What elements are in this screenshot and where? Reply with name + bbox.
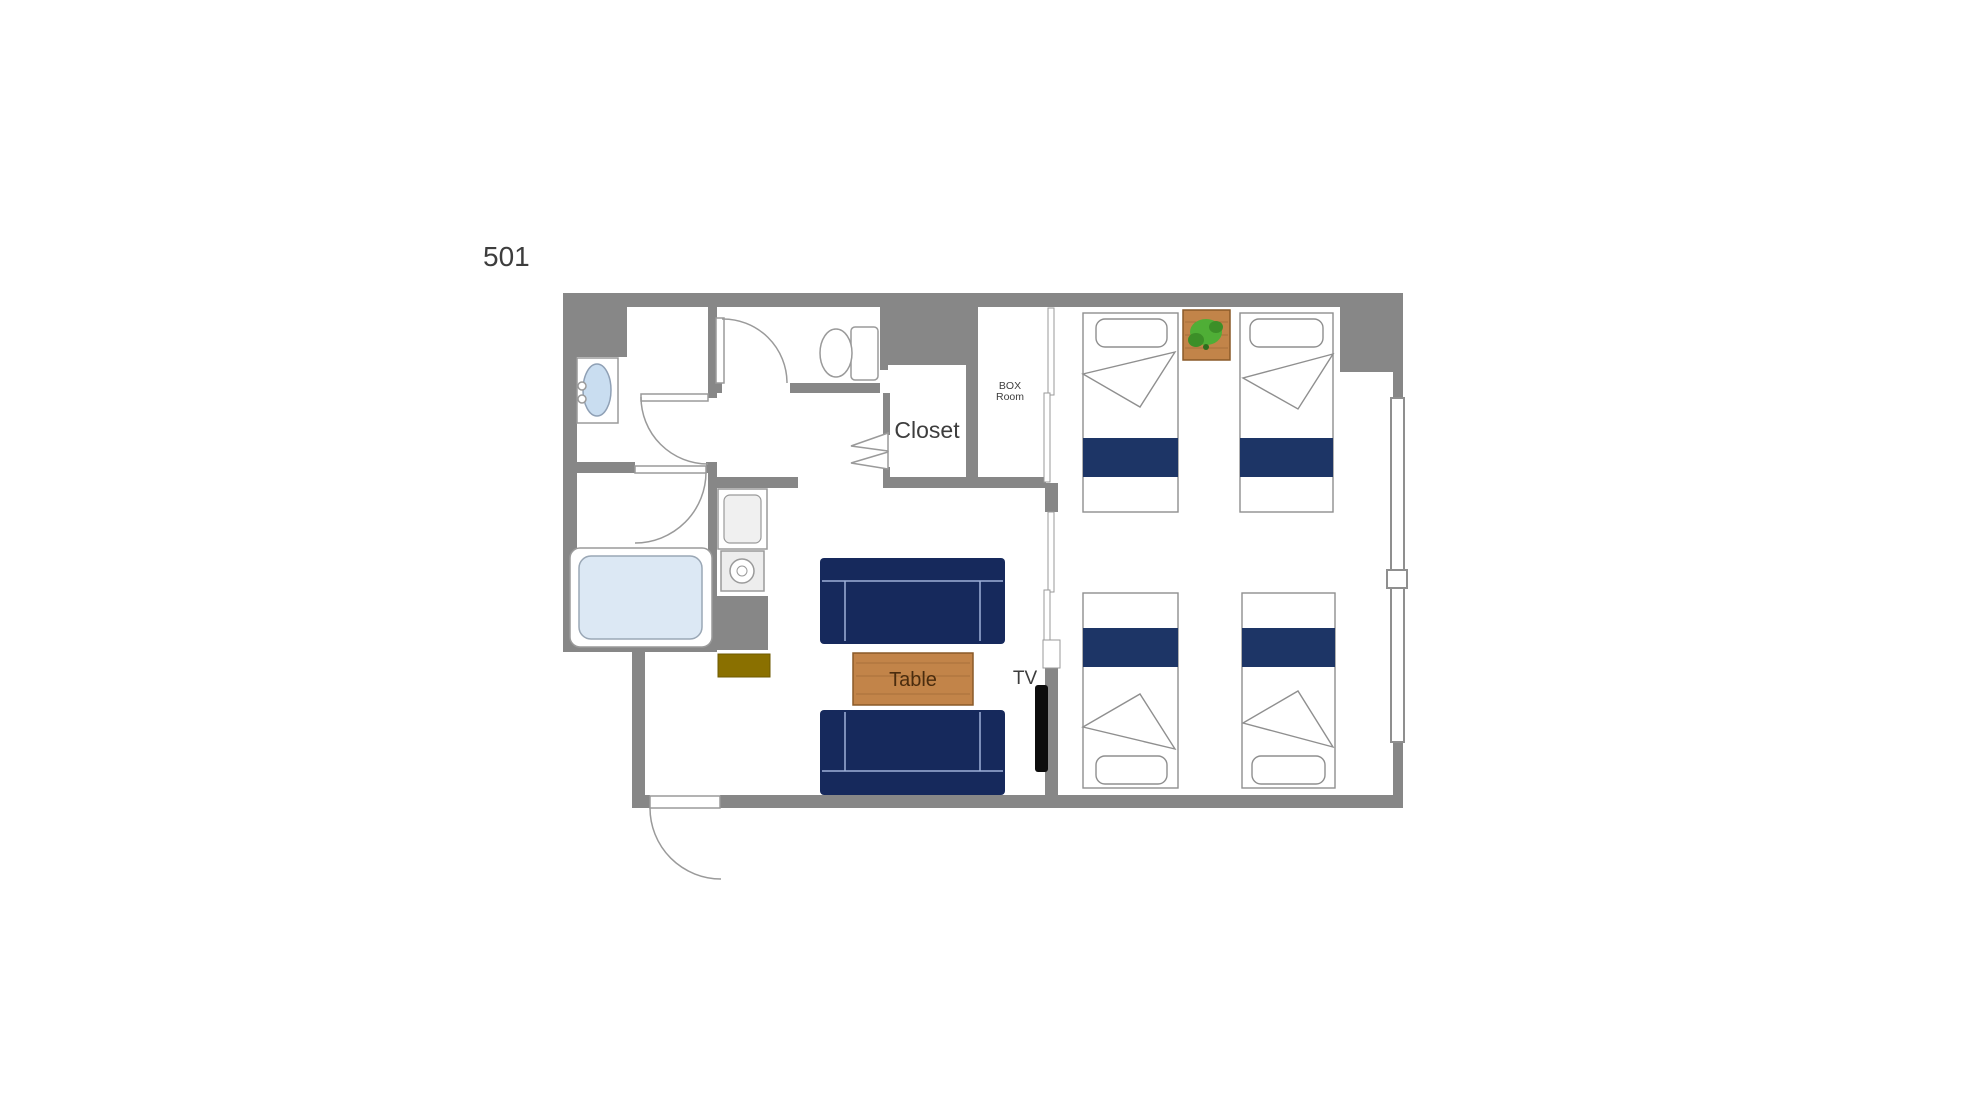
pillow-bottom-right: [1252, 756, 1325, 784]
pillow-top-left: [1096, 319, 1167, 347]
plant-leaf-left: [1188, 333, 1204, 347]
shaft-center: [888, 302, 978, 365]
table-label: Table: [889, 669, 937, 691]
wall-hall-bottom-left: [708, 477, 798, 488]
window-divider: [1387, 570, 1407, 588]
closet-bifold-door-upper: [851, 433, 888, 451]
partition-post: [1045, 483, 1058, 512]
wall-closet-left-upper: [883, 393, 890, 435]
shaft-top-right-corner: [1340, 303, 1403, 372]
box-room-label-line2: Room: [996, 391, 1024, 403]
pillow-bottom-left: [1096, 756, 1167, 784]
bathroom-door-arc: [635, 472, 706, 543]
toilet-door-leaf: [716, 318, 724, 383]
beds: [1083, 313, 1335, 788]
floor-plan-page: 501 Closet BOX Room Table TV: [0, 0, 1968, 1102]
bedroom-window: [1387, 398, 1407, 742]
wall-toilet-bottom-left: [708, 383, 722, 393]
bathtub-inner: [579, 556, 702, 639]
wall-toilet-right: [880, 300, 888, 370]
bed-top-right-blanket: [1240, 438, 1333, 477]
plant-stand: [1183, 310, 1230, 360]
kitchen-sink-basin: [724, 495, 761, 543]
sliding-panel-lower-a: [1048, 512, 1054, 592]
entrance-door-arc: [650, 808, 721, 879]
plant-leaf-dot: [1203, 344, 1209, 350]
wall-vanity-tub-left: [575, 462, 635, 473]
wall-bottom-left-stub: [632, 795, 650, 808]
bed-bottom-left-blanket: [1083, 628, 1178, 667]
sliding-panel-upper-a: [1048, 308, 1054, 395]
tv-label: TV: [1013, 668, 1038, 689]
plant-leaf-right: [1209, 321, 1223, 333]
wall-right-above-window: [1393, 372, 1403, 400]
sliding-panel-end-cap: [1043, 640, 1060, 668]
entry-mat: [718, 654, 770, 677]
wall-top: [563, 293, 1403, 307]
wall-closet-right: [966, 365, 978, 488]
wall-bottom-main: [720, 795, 1403, 808]
toilet-tank: [851, 327, 878, 380]
basin-faucet-top: [578, 382, 586, 390]
pillow-top-right: [1250, 319, 1323, 347]
washroom-door-leaf: [641, 394, 708, 401]
closet-bifold-door-lower: [851, 452, 888, 469]
stove-burner-center: [737, 566, 747, 576]
wall-hall-bottom-right: [883, 477, 1046, 488]
sofa-lower: [820, 710, 1005, 795]
floor-plan-drawing: 501 Closet BOX Room Table TV: [0, 0, 1968, 1102]
wash-basin-bowl: [583, 364, 611, 416]
tv-panel: [1035, 685, 1048, 772]
closet-label: Closet: [894, 417, 960, 443]
sofa-upper: [820, 558, 1005, 644]
unit-number-label: 501: [483, 241, 530, 272]
bed-bottom-right-blanket: [1242, 628, 1335, 667]
wall-entry-corridor-left: [632, 650, 645, 808]
sliding-panel-lower-b: [1044, 590, 1050, 642]
basin-faucet-bottom: [578, 395, 586, 403]
sliding-panel-upper-b: [1044, 393, 1050, 482]
shaft-top-left: [577, 307, 627, 357]
toilet-bowl: [820, 329, 852, 377]
entrance-door-leaf: [650, 796, 720, 808]
wall-closet-left-lower: [883, 467, 890, 488]
washroom-door-arc: [641, 397, 708, 464]
kitchen-counter-base: [710, 596, 768, 650]
wall-toilet-bottom-right: [790, 383, 880, 393]
bathroom-door-leaf: [635, 466, 706, 473]
bed-top-left-blanket: [1083, 438, 1178, 477]
toilet-door-arc: [722, 319, 787, 383]
wall-right-bottom: [1393, 742, 1403, 808]
